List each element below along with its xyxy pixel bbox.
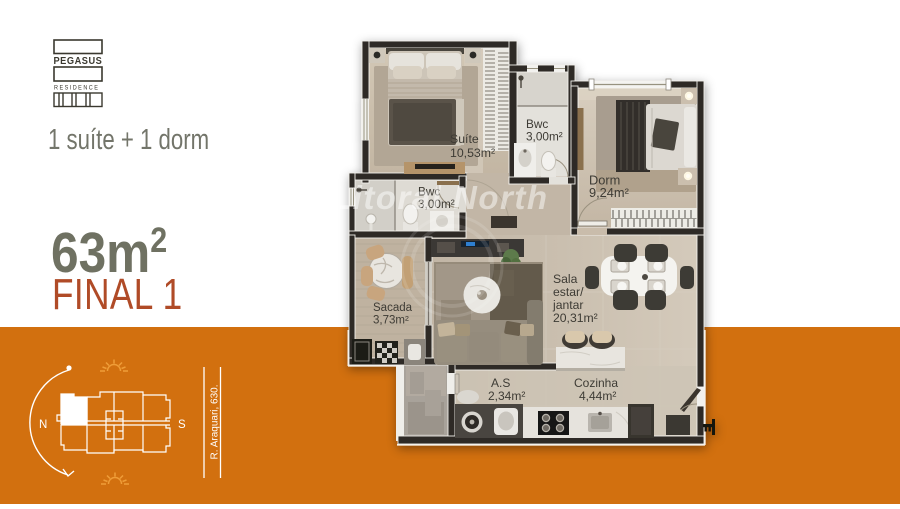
svg-text:10,53m²: 10,53m²: [450, 146, 495, 160]
svg-text:A.S: A.S: [491, 376, 510, 390]
svg-text:PEGASUS: PEGASUS: [54, 56, 103, 68]
svg-text:4,44m²: 4,44m²: [579, 389, 616, 403]
svg-text:jantar: jantar: [552, 298, 584, 312]
svg-text:N: N: [39, 419, 47, 431]
svg-text:Sala: Sala: [553, 272, 578, 286]
svg-text:Sacada: Sacada: [373, 302, 413, 314]
svg-text:RESIDENCE: RESIDENCE: [54, 85, 99, 91]
svg-text:estar/: estar/: [553, 285, 584, 299]
svg-text:2,34m²: 2,34m²: [488, 389, 525, 403]
svg-text:9,24m²: 9,24m²: [589, 185, 630, 200]
svg-text:20,31m²: 20,31m²: [553, 311, 598, 325]
svg-text:1 suíte + 1 dorm: 1 suíte + 1 dorm: [48, 124, 209, 155]
svg-text:Litoral North: Litoral North: [331, 179, 548, 216]
svg-text:FINAL 1: FINAL 1: [52, 270, 183, 319]
svg-text:3,73m²: 3,73m²: [373, 315, 409, 327]
svg-text:R. Araquari, 630.: R. Araquari, 630.: [210, 384, 221, 459]
svg-text:S: S: [178, 419, 186, 431]
svg-text:Suíte: Suíte: [450, 132, 479, 146]
svg-text:Cozinha: Cozinha: [574, 376, 618, 390]
svg-text:3,00m²: 3,00m²: [526, 130, 563, 144]
